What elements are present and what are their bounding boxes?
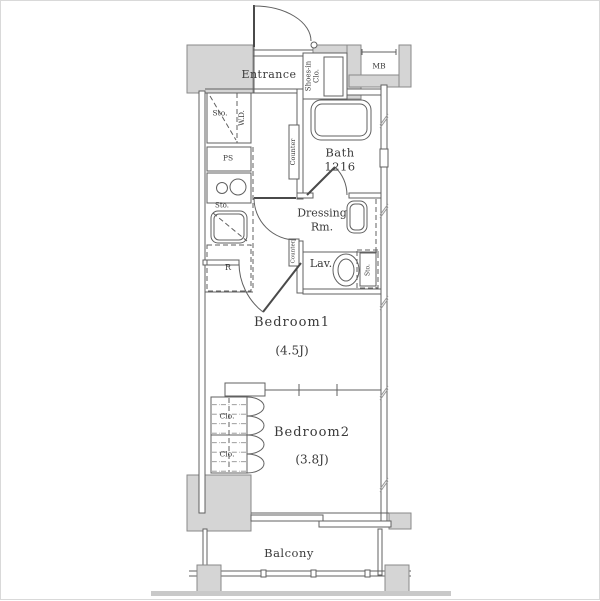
lavatory-label: Lav. xyxy=(310,257,332,271)
washer-dryer-label: W.D. xyxy=(238,110,246,126)
dressing-room-label-line2: Rm. xyxy=(297,220,347,234)
dressing-room-label: Dressing Rm. xyxy=(297,206,347,234)
bedroom2-label: Bedroom2 xyxy=(274,425,350,441)
bathtub xyxy=(311,100,371,140)
bedroom1-label: Bedroom1 xyxy=(254,315,330,331)
kitchen-storage-label: Sto. xyxy=(215,202,229,211)
counter-lower-label: Counter xyxy=(291,241,298,264)
shoes-in-closet-label: Shoes-in Clo. xyxy=(305,61,322,91)
bath-label-name: Bath xyxy=(324,146,355,160)
bedroom1-door xyxy=(239,263,301,312)
sliding-partition xyxy=(225,383,381,396)
closet xyxy=(211,397,264,473)
balcony-pier xyxy=(197,565,221,595)
balcony-window xyxy=(251,513,391,527)
bedroom1-size-label: (4.5J) xyxy=(275,344,308,359)
balcony-pier xyxy=(385,565,409,595)
balcony-structure xyxy=(151,529,451,596)
bath-label-size: 1216 xyxy=(324,160,355,174)
dressing-room-label-line1: Dressing xyxy=(297,206,347,220)
bath-window xyxy=(380,149,388,167)
closet-folding-doors xyxy=(247,397,264,473)
entrance-label: Entrance xyxy=(241,68,296,82)
lavatory-storage-label: Sto. xyxy=(364,264,371,276)
floor-plan-drawing xyxy=(1,1,600,601)
refrigerator-label: R xyxy=(225,263,231,273)
entrance-door xyxy=(253,5,317,56)
bedroom2-size-label: (3.8J) xyxy=(295,453,328,468)
stove xyxy=(207,173,251,203)
shoes-in-closet-label-line2: Clo. xyxy=(313,61,321,91)
counter-upper-label: Counter xyxy=(290,139,298,166)
hall-storage-label: Sto. xyxy=(213,108,228,117)
floor-plan: Entrance Shoes-in Clo. MB Sto. W.D. PS S… xyxy=(0,0,600,600)
closet-upper-label: Clo. xyxy=(220,411,235,420)
meter-box-label: MB xyxy=(372,61,385,70)
closet-lower-label: Clo. xyxy=(220,449,235,458)
shoes-in-closet-label-line1: Shoes-in xyxy=(305,61,313,91)
pipe-space-label: PS xyxy=(223,153,233,162)
bath-label: Bath 1216 xyxy=(324,146,355,175)
meter-box xyxy=(362,49,396,55)
balcony-label: Balcony xyxy=(264,546,314,560)
site-boundary xyxy=(151,591,451,596)
door-closer-icon xyxy=(311,42,317,48)
